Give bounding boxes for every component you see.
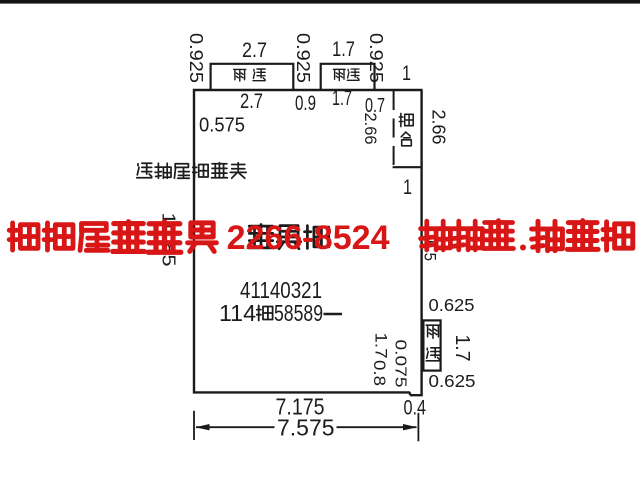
svg-text:0.925: 0.925	[293, 33, 313, 83]
svg-text:2.7: 2.7	[242, 39, 267, 62]
svg-text:2.66: 2.66	[361, 113, 379, 145]
svg-text:0.925: 0.925	[186, 33, 206, 83]
svg-text:1.7: 1.7	[332, 38, 355, 61]
svg-text:2.66: 2.66	[429, 110, 449, 145]
svg-text:1.7: 1.7	[371, 333, 390, 359]
svg-text:0.925: 0.925	[366, 33, 386, 83]
svg-text:0.4: 0.4	[404, 396, 427, 420]
svg-text:2266-8524: 2266-8524	[227, 219, 390, 257]
svg-text:2.7: 2.7	[240, 90, 263, 113]
svg-text:1.7: 1.7	[451, 335, 473, 362]
svg-text:7.575: 7.575	[277, 415, 335, 441]
svg-text:0.8: 0.8	[370, 360, 389, 386]
svg-text:0.575: 0.575	[199, 115, 245, 137]
svg-text:0.075: 0.075	[392, 340, 409, 388]
svg-text:1: 1	[402, 62, 411, 85]
svg-text:0.625: 0.625	[429, 371, 476, 391]
svg-text:1: 1	[403, 176, 412, 199]
svg-text:1.7: 1.7	[332, 87, 352, 110]
svg-text:0.625: 0.625	[429, 295, 475, 315]
svg-text:58589: 58589	[274, 300, 323, 326]
svg-text:0.9: 0.9	[295, 92, 316, 115]
svg-text:114: 114	[219, 300, 256, 326]
